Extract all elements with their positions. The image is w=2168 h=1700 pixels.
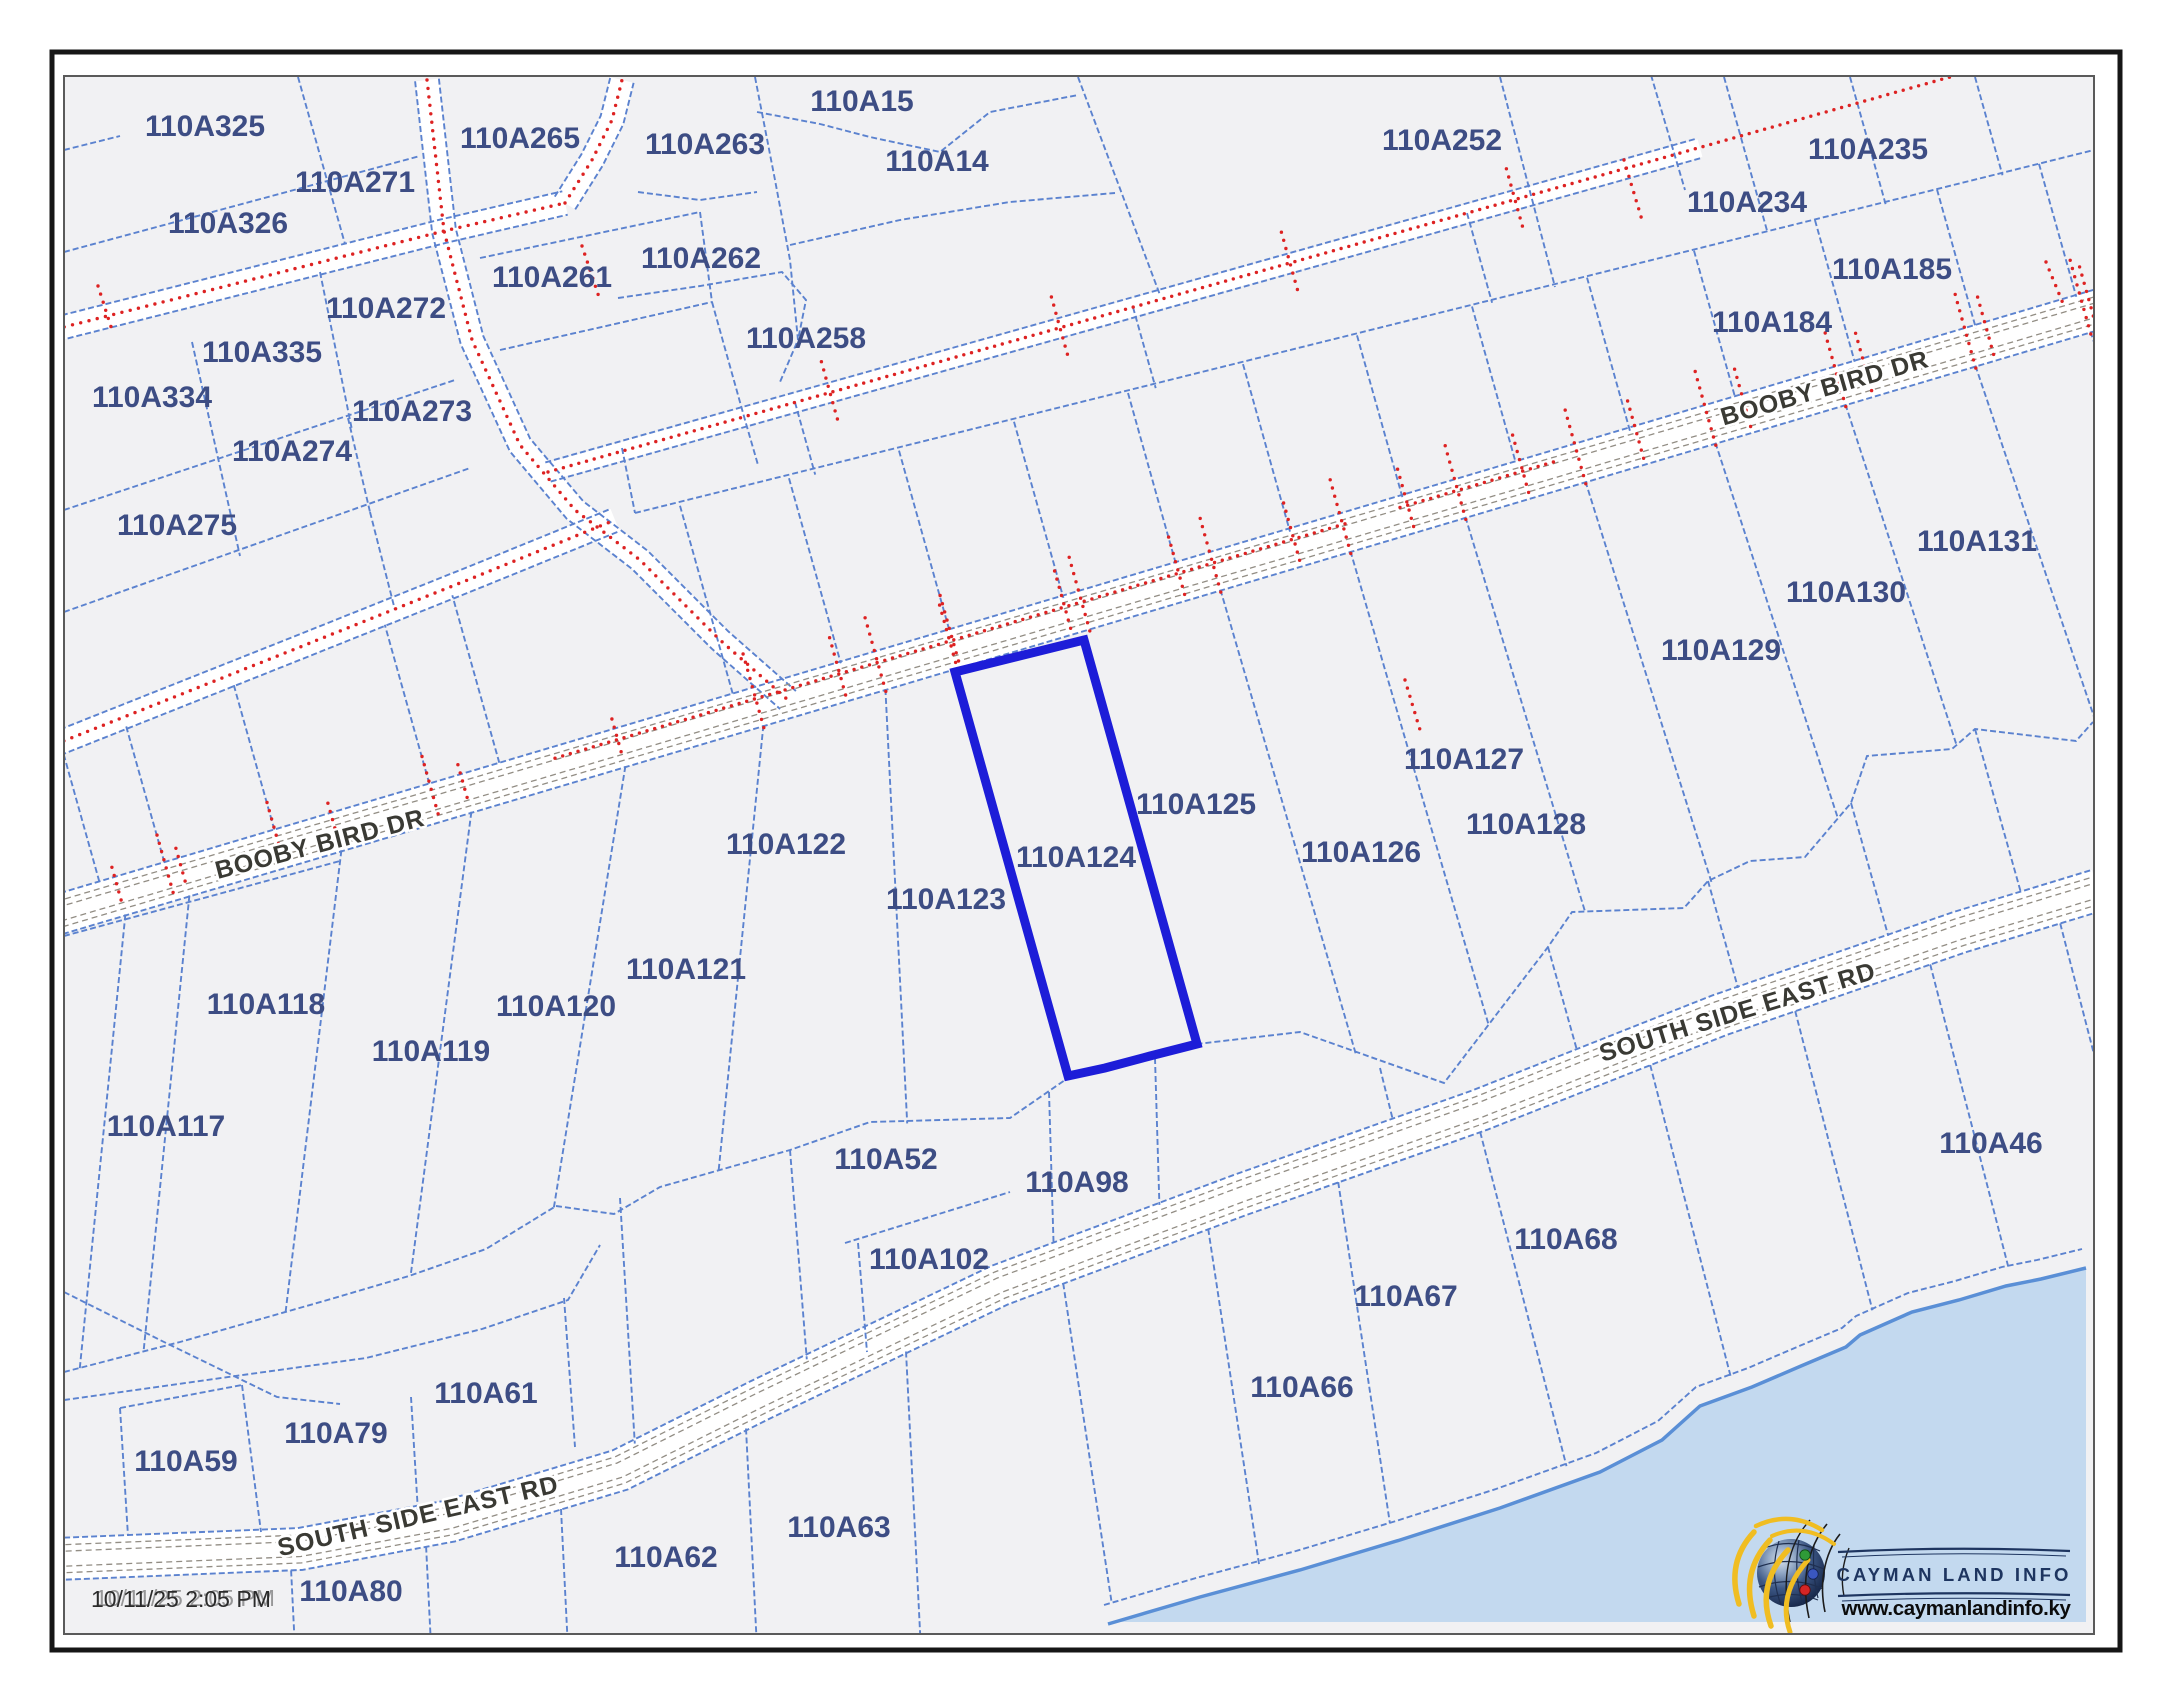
svg-text:110A275: 110A275 xyxy=(117,509,237,542)
svg-text:110A252: 110A252 xyxy=(1382,124,1502,157)
svg-text:110A14: 110A14 xyxy=(885,145,989,178)
svg-text:www.caymanlandinfo.ky: www.caymanlandinfo.ky xyxy=(1841,1597,2072,1620)
svg-text:110A274: 110A274 xyxy=(232,435,352,468)
svg-text:110A15: 110A15 xyxy=(810,85,913,118)
svg-text:110A127: 110A127 xyxy=(1404,743,1524,776)
svg-text:110A61: 110A61 xyxy=(434,1377,537,1410)
svg-text:110A326: 110A326 xyxy=(168,207,288,240)
svg-text:110A63: 110A63 xyxy=(787,1511,890,1544)
svg-text:110A234: 110A234 xyxy=(1687,186,1807,219)
svg-text:110A121: 110A121 xyxy=(626,953,746,986)
svg-text:110A261: 110A261 xyxy=(492,261,612,294)
svg-text:110A258: 110A258 xyxy=(746,322,866,355)
svg-text:110A272: 110A272 xyxy=(326,292,446,325)
svg-text:110A185: 110A185 xyxy=(1832,253,1952,286)
svg-text:110A46: 110A46 xyxy=(1939,1127,2042,1160)
svg-text:110A335: 110A335 xyxy=(202,336,322,369)
svg-text:110A122: 110A122 xyxy=(726,828,846,861)
svg-text:110A98: 110A98 xyxy=(1025,1166,1128,1199)
svg-text:110A129: 110A129 xyxy=(1661,634,1781,667)
svg-text:110A131: 110A131 xyxy=(1917,525,2037,558)
svg-text:110A52: 110A52 xyxy=(834,1143,937,1176)
svg-text:110A59: 110A59 xyxy=(134,1445,237,1478)
svg-text:110A102: 110A102 xyxy=(869,1243,989,1276)
svg-text:110A62: 110A62 xyxy=(614,1541,717,1574)
svg-text:110A271: 110A271 xyxy=(295,166,415,199)
svg-text:110A68: 110A68 xyxy=(1514,1223,1617,1256)
svg-text:110A130: 110A130 xyxy=(1786,576,1906,609)
svg-text:110A325: 110A325 xyxy=(145,110,265,143)
svg-text:110A235: 110A235 xyxy=(1808,133,1928,166)
svg-text:110A184: 110A184 xyxy=(1712,306,1832,339)
svg-text:110A265: 110A265 xyxy=(460,122,580,155)
svg-text:110A334: 110A334 xyxy=(92,381,212,414)
svg-text:110A273: 110A273 xyxy=(352,395,472,428)
svg-text:110A262: 110A262 xyxy=(641,242,761,275)
svg-text:110A66: 110A66 xyxy=(1250,1371,1353,1404)
svg-text:110A124: 110A124 xyxy=(1016,841,1136,874)
svg-text:110A128: 110A128 xyxy=(1466,808,1586,841)
svg-text:110A120: 110A120 xyxy=(496,990,616,1023)
svg-text:110A80: 110A80 xyxy=(299,1575,402,1608)
svg-text:CAYMAN LAND INFO: CAYMAN LAND INFO xyxy=(1837,1564,2072,1585)
svg-text:110A123: 110A123 xyxy=(886,883,1006,916)
svg-text:110A126: 110A126 xyxy=(1301,836,1421,869)
svg-text:110A263: 110A263 xyxy=(645,128,765,161)
svg-text:110A79: 110A79 xyxy=(284,1417,387,1450)
svg-text:110A119: 110A119 xyxy=(372,1035,490,1068)
svg-text:110A125: 110A125 xyxy=(1136,788,1256,821)
svg-text:10/11/25 2:05 PM: 10/11/25 2:05 PM xyxy=(95,1585,275,1611)
svg-text:110A117: 110A117 xyxy=(107,1110,225,1143)
svg-text:110A118: 110A118 xyxy=(207,988,325,1021)
svg-text:110A67: 110A67 xyxy=(1354,1280,1457,1313)
